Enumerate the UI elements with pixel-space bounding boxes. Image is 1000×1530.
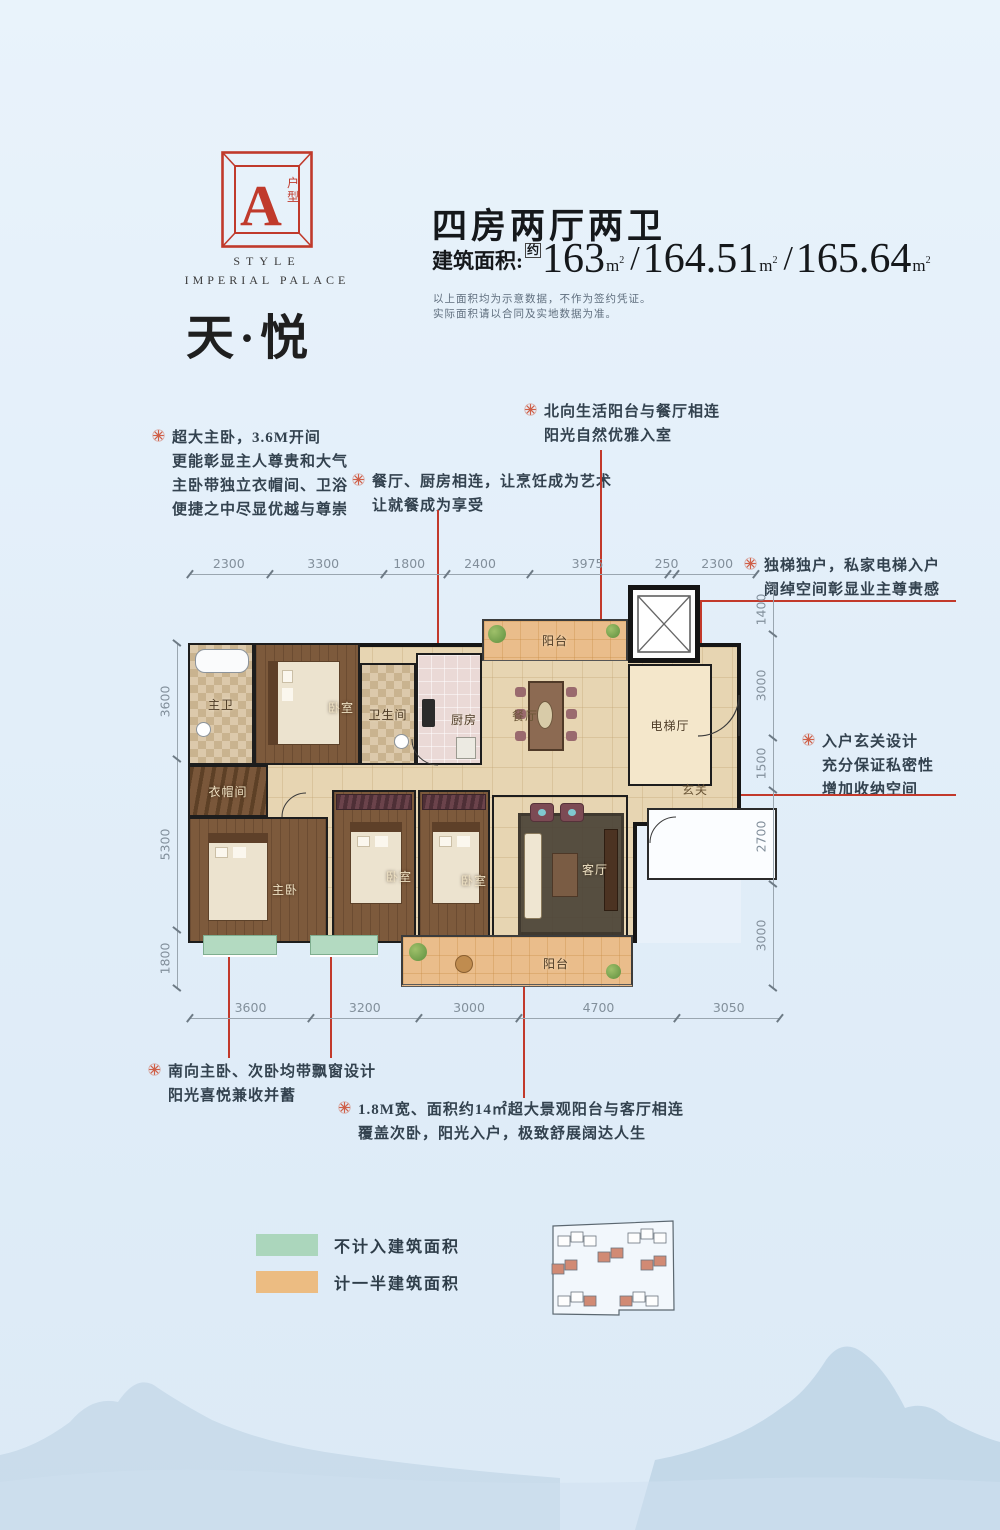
coffee-table-icon xyxy=(552,853,578,897)
area-label: 建筑面积: xyxy=(432,245,523,280)
style-word: STYLE xyxy=(178,254,356,269)
annotation-marker-icon xyxy=(338,1101,351,1114)
room-label: 主卫 xyxy=(208,696,234,713)
imperial-palace-word: IMPERIAL PALACE xyxy=(178,273,356,288)
fridge-icon xyxy=(456,737,476,759)
project-name: 天·悦 xyxy=(186,298,313,368)
plant-icon xyxy=(409,943,427,961)
logo-type-char-2: 型 xyxy=(287,190,299,204)
annotation-marker-icon xyxy=(802,733,815,746)
plant-icon xyxy=(606,964,621,979)
area-values: 163m2/164.51m2/165.64m2 xyxy=(542,240,931,280)
room-label: 卧室 xyxy=(386,868,412,885)
balcony-table-icon xyxy=(455,955,473,973)
legend-label: 计一半建筑面积 xyxy=(334,1270,460,1294)
stove-icon xyxy=(422,699,435,727)
floor-plan: 主卫 卧室 卫生间 厨房 阳台 电梯厅 xyxy=(186,583,790,991)
bay-window-master xyxy=(203,935,277,955)
room-label: 阳台 xyxy=(543,955,569,972)
bed-icon xyxy=(432,822,480,904)
logo-style-caption: STYLE IMPERIAL PALACE xyxy=(178,254,356,288)
annotation-dining-kitchen: 餐厅、厨房相连，让烹饪成为艺术让就餐成为享受 xyxy=(352,470,612,518)
wardrobe-icon xyxy=(336,794,412,810)
dimensions-right: 14003000150027003000 xyxy=(748,585,774,988)
room-kitchen: 厨房 xyxy=(416,653,482,765)
room-balcony-south: 阳台 xyxy=(401,935,633,987)
unit-type-logo: A 户 型 xyxy=(221,151,313,248)
washbasin-icon xyxy=(196,722,211,737)
annotation-text: 餐厅、厨房相连，让烹饪成为艺术让就餐成为享受 xyxy=(372,470,612,518)
annotation-text: 独梯独户，私家电梯入户阔绰空间彰显业主尊贵感 xyxy=(764,554,940,602)
logo-letter: A xyxy=(240,173,282,238)
annotation-south-balcony: 1.8M宽、面积约14㎡超大景观阳台与客厅相连覆盖次卧，阳光入户，极致舒展阔达人… xyxy=(338,1098,684,1146)
elevator-shaft xyxy=(628,585,700,663)
washbasin-icon xyxy=(394,734,409,749)
legend-swatch-orange xyxy=(256,1271,318,1293)
plant-icon xyxy=(606,624,620,638)
annotation-master-suite: 超大主卧，3.6M开间更能彰显主人尊贵和大气主卧带独立衣帽间、卫浴便捷之中尽显优… xyxy=(152,426,348,522)
room-living: 客厅 xyxy=(492,795,628,943)
room-label: 厨房 xyxy=(451,711,477,728)
disclaimer-line-1: 以上面积均为示意数据，不作为签约凭证。 xyxy=(433,291,652,306)
room-label: 卧室 xyxy=(461,872,487,889)
room-balcony-north: 阳台 xyxy=(482,619,628,661)
room-label: 主卧 xyxy=(272,881,298,898)
bed-icon xyxy=(350,822,402,904)
annotation-text: 入户玄关设计充分保证私密性增加收纳空间 xyxy=(822,730,934,802)
dimensions-bottom: 36003200300047003050 xyxy=(190,996,780,1019)
bathtub-icon xyxy=(195,649,249,673)
legend-swatch-green xyxy=(256,1234,318,1256)
logo-type-char-1: 户 xyxy=(287,175,299,190)
elevator-icon xyxy=(637,595,691,653)
room-label: 衣帽间 xyxy=(208,783,247,800)
site-plan-map xyxy=(540,1208,684,1322)
annotation-text: 超大主卧，3.6M开间更能彰显主人尊贵和大气主卧带独立衣帽间、卫浴便捷之中尽显优… xyxy=(172,426,348,522)
room-elevator-hall: 电梯厅 xyxy=(628,664,712,786)
floorplan-poster: A 户 型 STYLE IMPERIAL PALACE 天·悦 四房两厅两卫 建… xyxy=(0,0,1000,1530)
room-label: 客厅 xyxy=(582,861,608,878)
annotation-text: 北向生活阳台与餐厅相连阳光自然优雅入室 xyxy=(544,400,720,448)
room-master-bedroom: 主卧 xyxy=(188,817,328,943)
plant-icon xyxy=(488,625,506,643)
built-area-row: 建筑面积: 约 163m2/164.51m2/165.64m2 xyxy=(432,240,931,280)
room-bedroom-right: 卧室 xyxy=(418,790,490,943)
annotation-text: 1.8M宽、面积约14㎡超大景观阳台与客厅相连覆盖次卧，阳光入户，极致舒展阔达人… xyxy=(358,1098,684,1146)
legend: 不计入建筑面积 计一半建筑面积 xyxy=(256,1233,460,1294)
annotation-north-balcony: 北向生活阳台与餐厅相连阳光自然优雅入室 xyxy=(524,400,720,448)
annotation-marker-icon xyxy=(524,403,537,416)
dimensions-left: 360053001800 xyxy=(152,643,178,988)
room-label: 阳台 xyxy=(542,632,568,649)
room-bedroom-top: 卧室 xyxy=(254,643,360,765)
area-approx-stamp: 约 xyxy=(525,243,541,258)
room-master-bath: 主卫 xyxy=(188,643,254,765)
room-label-foyer: 玄关 xyxy=(682,781,708,798)
mountain-background xyxy=(0,1300,1000,1530)
legend-label: 不计入建筑面积 xyxy=(334,1233,460,1257)
wardrobe-icon xyxy=(422,794,486,810)
bay-window-mid xyxy=(310,935,378,955)
disclaimer-line-2: 实际面积请以合同及实地数据为准。 xyxy=(433,306,617,321)
sofa-icon xyxy=(524,833,542,919)
room-label-dining: 餐厅 xyxy=(512,707,538,724)
room-bathroom: 卫生间 xyxy=(360,663,416,765)
annotation-marker-icon xyxy=(152,429,165,442)
armchair-icon xyxy=(530,803,554,822)
annotation-marker-icon xyxy=(148,1063,161,1076)
legend-item-half: 计一半建筑面积 xyxy=(256,1270,460,1294)
annotation-foyer: 入户玄关设计充分保证私密性增加收纳空间 xyxy=(802,730,934,802)
legend-item-excluded: 不计入建筑面积 xyxy=(256,1233,460,1257)
room-label: 卧室 xyxy=(328,699,354,716)
room-cloakroom: 衣帽间 xyxy=(188,765,268,817)
bed-icon xyxy=(208,833,268,921)
room-label: 卫生间 xyxy=(368,706,407,723)
room-label: 电梯厅 xyxy=(650,717,689,734)
armchair-icon xyxy=(560,803,584,822)
annotation-marker-icon xyxy=(352,473,365,486)
room-bedroom-mid: 卧室 xyxy=(332,790,416,943)
dimensions-top: 230033001800240039752502300 xyxy=(190,552,756,575)
